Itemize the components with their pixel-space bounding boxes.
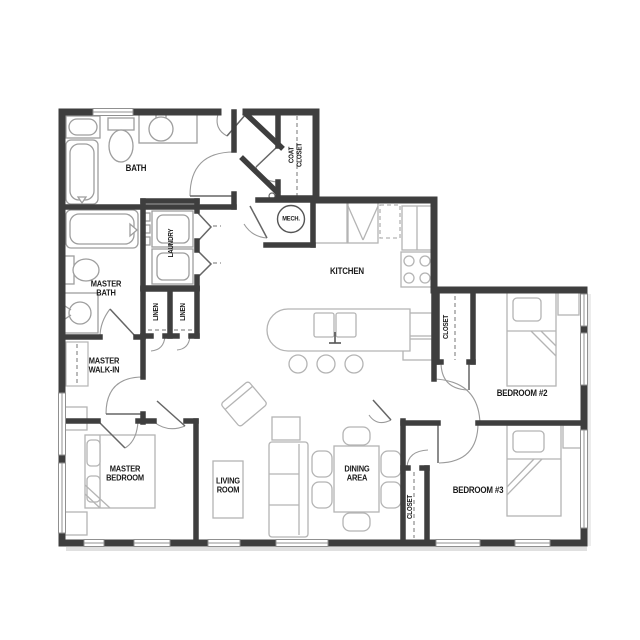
master-entry-door-leaf <box>157 401 185 426</box>
pillow <box>513 298 541 321</box>
master-sink <box>69 302 91 324</box>
coat-closet-door-leaf <box>256 146 278 167</box>
floor-plan-drawing <box>0 0 640 640</box>
bar-stool <box>289 355 307 373</box>
room-label-bedroom3: BEDROOM #3 <box>453 486 504 496</box>
pillow <box>87 440 100 466</box>
burner <box>420 256 430 266</box>
living-dining-furniture <box>213 381 401 537</box>
master-bath-door-leaf <box>110 309 136 337</box>
corner-cabinet <box>348 202 378 243</box>
label-line: BEDROOM <box>106 474 144 483</box>
room-label-coat-closet: COAT CLOSET <box>288 143 303 167</box>
dining-chair <box>381 451 401 477</box>
room-label-master-bedroom: MASTER BEDROOM <box>106 465 144 484</box>
room-label-master-bath: MASTER BATH <box>91 280 122 299</box>
bar-stool <box>317 355 335 373</box>
bedroom2-door-arc <box>434 379 480 424</box>
pillow <box>513 431 544 452</box>
room-label-living-room: LIVING ROOM <box>216 477 240 496</box>
bedroom3-door-arc <box>439 423 478 463</box>
floor-plan: BATH COAT CLOSET MECH. LAUNDRY MASTER BA… <box>0 0 640 640</box>
nightstand <box>64 512 87 535</box>
bath-door-arc <box>190 152 234 196</box>
toilet-bowl <box>109 130 133 162</box>
room-label-bedroom2: BEDROOM #2 <box>497 389 548 399</box>
laundry-bifold-door <box>197 250 211 278</box>
room-label-bedroom2-closet: CLOSET <box>443 315 451 339</box>
nightstand <box>558 291 579 315</box>
hall-door-leaf <box>373 400 391 420</box>
laundry-bifold-door <box>197 212 211 242</box>
bedroom3-closet-door-arc <box>407 450 428 467</box>
dining-chair <box>312 451 332 477</box>
bedroom2-closet-door-arc <box>441 362 468 390</box>
master-bath-door-arc <box>100 309 110 337</box>
burner <box>404 256 414 266</box>
bathtub-inner <box>70 144 94 200</box>
label-line: COAT <box>288 143 296 167</box>
dining-chair <box>343 513 370 531</box>
master-entry-door-arc <box>154 422 185 429</box>
toilet-tank <box>108 118 134 130</box>
walkin-door-arc <box>106 377 143 414</box>
label-line: WALK-IN <box>89 366 120 375</box>
label-line: AREA <box>344 474 369 483</box>
island-sink-basin <box>336 313 356 337</box>
room-label-mech: MECH. <box>282 215 300 222</box>
label-line: CLOSET <box>296 143 304 167</box>
kitchen-counter <box>311 202 347 243</box>
island-sink-basin <box>314 313 334 337</box>
room-label-bedroom3-closet: CLOSET <box>407 495 415 519</box>
end-table <box>272 417 300 440</box>
master-bathtub-inner <box>70 214 134 244</box>
room-label-laundry: LAUNDRY <box>168 229 176 258</box>
label-line: BATH <box>91 289 122 298</box>
room-label-dining-area: DINING AREA <box>344 465 369 484</box>
bath-cabinet-inner <box>69 119 97 135</box>
dining-chair <box>381 482 401 508</box>
room-label-bath: BATH <box>126 164 147 174</box>
entry-door-arc <box>217 114 227 136</box>
dining-chair <box>312 482 332 508</box>
armchair <box>221 381 268 427</box>
room-label-master-walk-in: MASTER WALK-IN <box>89 357 120 376</box>
label-line: ROOM <box>216 486 240 495</box>
dining-chair <box>343 427 370 445</box>
room-label-kitchen: KITCHEN <box>330 267 364 277</box>
upper-cabinet-dashed <box>380 205 400 238</box>
sofa <box>269 442 308 537</box>
burner <box>420 273 430 283</box>
room-label-linen-right: LINEN <box>180 303 188 321</box>
room-label-linen-left: LINEN <box>153 303 161 321</box>
bath-sink <box>149 117 173 141</box>
burner <box>404 273 414 283</box>
bar-stool <box>345 355 363 373</box>
